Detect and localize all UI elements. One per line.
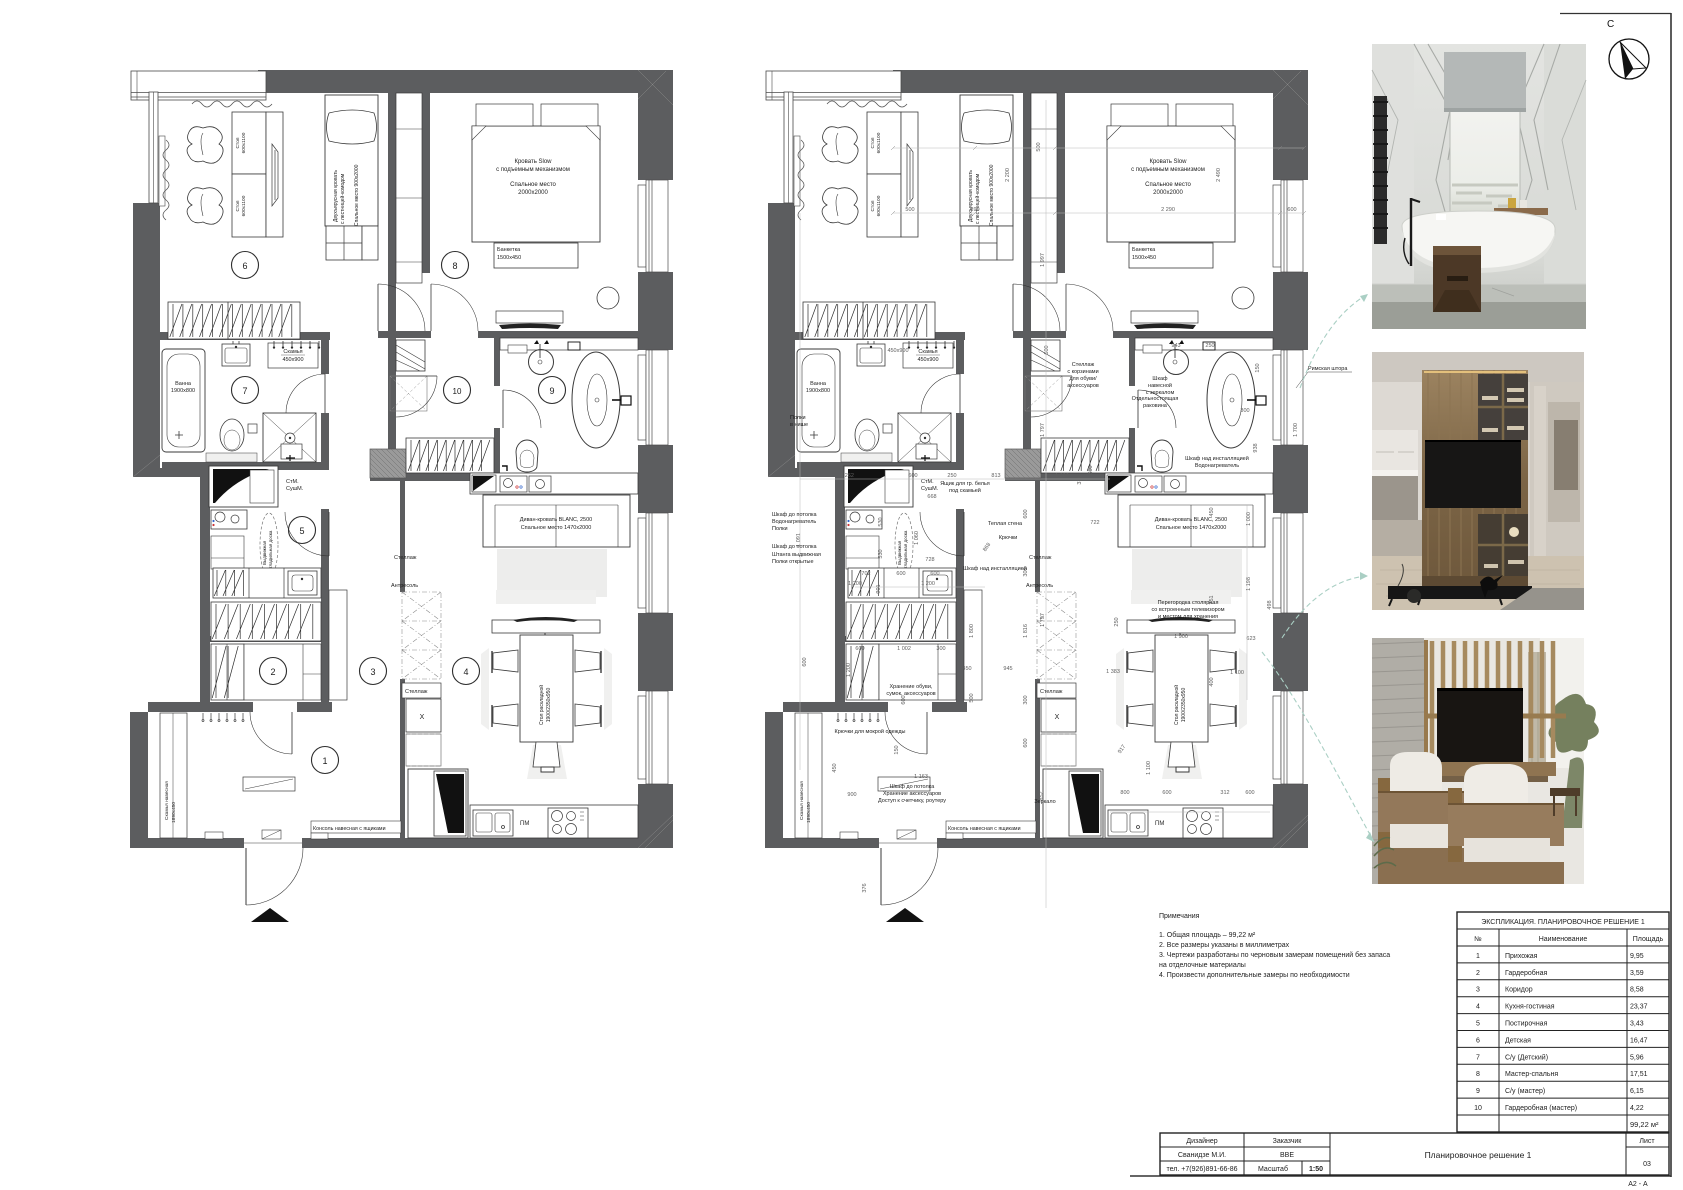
svg-text:3: 3	[370, 667, 375, 677]
svg-text:8,58: 8,58	[1630, 987, 1644, 994]
svg-text:2. Все размеры указаны в милли: 2. Все размеры указаны в миллиметрах	[1159, 942, 1290, 949]
svg-text:250: 250	[947, 473, 956, 479]
svg-text:17,51: 17,51	[1630, 1071, 1648, 1078]
svg-text:сумок, аксессуаров: сумок, аксессуаров	[886, 691, 935, 697]
svg-text:498: 498	[1267, 600, 1273, 609]
svg-text:гладильная доска: гладильная доска	[903, 530, 908, 568]
svg-text:Прихожая: Прихожая	[1505, 953, 1538, 960]
svg-text:8: 8	[1476, 1071, 1480, 1078]
svg-text:9: 9	[1476, 1088, 1480, 1095]
svg-text:600: 600	[1088, 465, 1094, 474]
svg-text:1 797: 1 797	[1040, 613, 1046, 627]
svg-text:Хранение аксессуаров: Хранение аксессуаров	[883, 791, 941, 797]
svg-text:530: 530	[878, 517, 884, 526]
svg-text:навесной: навесной	[1148, 382, 1172, 389]
svg-text:376: 376	[862, 883, 868, 892]
svg-text:Постирочная: Постирочная	[1505, 1021, 1548, 1028]
svg-text:Заказчик: Заказчик	[1273, 1138, 1303, 1145]
svg-text:Выдвижная: Выдвижная	[262, 540, 267, 565]
svg-text:250: 250	[1205, 343, 1214, 349]
svg-text:Шкаф над инсталляцией: Шкаф над инсталляцией	[1185, 455, 1249, 462]
svg-text:Скамья: Скамья	[918, 349, 937, 355]
svg-text:Кровать Slow: Кровать Slow	[1149, 159, 1187, 165]
svg-text:2 490: 2 490	[1216, 168, 1222, 182]
svg-text:Шкаф до потолка: Шкаф до потолка	[772, 512, 818, 518]
svg-text:Стеллаж: Стеллаж	[1072, 362, 1095, 368]
svg-text:300: 300	[1023, 695, 1029, 704]
svg-text:Ванна: Ванна	[175, 381, 192, 387]
svg-text:Диван-кровать BLANC, 2500: Диван-кровать BLANC, 2500	[520, 517, 592, 523]
svg-text:Хранение обуви,: Хранение обуви,	[890, 684, 933, 690]
svg-text:Водонагреватель: Водонагреватель	[772, 519, 816, 525]
svg-text:Спальное место: Спальное место	[510, 182, 556, 188]
svg-text:1900/2350х950: 1900/2350х950	[1181, 688, 1187, 723]
svg-text:Масштаб: Масштаб	[1258, 1165, 1288, 1173]
svg-text:5: 5	[299, 526, 304, 536]
svg-text:Скамья навесная: Скамья навесная	[799, 781, 805, 820]
svg-text:Спальное место 1470х2000: Спальное место 1470х2000	[1156, 525, 1227, 531]
svg-text:623: 623	[1246, 636, 1255, 642]
svg-text:99,22 м²: 99,22 м²	[1630, 1120, 1659, 1129]
svg-text:1 200: 1 200	[848, 581, 862, 587]
svg-text:Полки: Полки	[772, 526, 788, 532]
svg-text:5: 5	[1476, 1021, 1480, 1028]
svg-text:со встроенным телевизором: со встроенным телевизором	[1151, 607, 1224, 613]
svg-text:Теплая стена: Теплая стена	[988, 521, 1023, 527]
svg-text:1 800: 1 800	[969, 624, 975, 638]
svg-text:600: 600	[1023, 738, 1029, 747]
svg-text:Стол раскладной: Стол раскладной	[1173, 685, 1180, 725]
svg-text:702: 702	[861, 571, 870, 577]
svg-text:Х: Х	[1055, 714, 1060, 721]
svg-text:Спальное место: Спальное место	[1145, 182, 1191, 188]
svg-text:2: 2	[1476, 970, 1480, 977]
svg-text:1 200: 1 200	[921, 581, 935, 587]
svg-text:Шкаф до потолка: Шкаф до потолка	[772, 544, 818, 550]
svg-text:1900х800: 1900х800	[806, 388, 830, 394]
svg-text:2 290: 2 290	[1161, 207, 1175, 213]
svg-text:312: 312	[1220, 790, 1229, 796]
svg-text:150: 150	[1255, 363, 1261, 372]
svg-text:1500х450: 1500х450	[1132, 255, 1156, 261]
svg-text:1890х450: 1890х450	[806, 802, 812, 823]
svg-text:600: 600	[802, 657, 808, 666]
svg-text:№: №	[1474, 936, 1482, 943]
svg-text:600х1100: 600х1100	[241, 195, 247, 216]
svg-text:1 060: 1 060	[914, 531, 920, 545]
svg-text:3,43: 3,43	[1630, 1021, 1644, 1028]
svg-text:ВВЕ: ВВЕ	[1280, 1152, 1294, 1159]
svg-text:3: 3	[1476, 987, 1480, 994]
svg-text:Скамья: Скамья	[283, 349, 302, 355]
svg-text:250: 250	[1114, 617, 1120, 626]
svg-text:Консоль навесная с ящиками: Консоль навесная с ящиками	[948, 826, 1021, 832]
svg-text:2 200: 2 200	[1005, 168, 1011, 182]
svg-text:Полки: Полки	[790, 415, 806, 421]
svg-text:Спальное место 1470х2000: Спальное место 1470х2000	[521, 525, 592, 531]
svg-text:1 797: 1 797	[1040, 423, 1046, 437]
svg-text:тел. +7(926)891-66-86: тел. +7(926)891-66-86	[1167, 1166, 1238, 1173]
svg-text:600: 600	[855, 646, 864, 652]
svg-text:Диван-кровать BLANC, 2500: Диван-кровать BLANC, 2500	[1155, 517, 1227, 523]
svg-text:4. Произвести дополнительные з: 4. Произвести дополнительные замеры по н…	[1159, 971, 1350, 979]
svg-text:450х900: 450х900	[917, 357, 938, 363]
svg-text:4: 4	[463, 667, 468, 677]
svg-text:Перегородка столярная: Перегородка столярная	[1158, 600, 1219, 606]
svg-text:6: 6	[242, 261, 247, 271]
svg-text:1890х450: 1890х450	[171, 802, 177, 823]
svg-text:Водонагреватель: Водонагреватель	[1195, 463, 1239, 469]
svg-text:600: 600	[1287, 207, 1296, 213]
svg-text:и местом для хранения: и местом для хранения	[1158, 614, 1218, 620]
svg-text:16,47: 16,47	[1630, 1037, 1648, 1044]
svg-text:Крючки: Крючки	[999, 535, 1018, 541]
svg-text:4: 4	[1476, 1004, 1480, 1011]
svg-text:1500х450: 1500х450	[497, 255, 521, 261]
svg-text:900: 900	[847, 792, 856, 798]
svg-text:Кухня-гостиная: Кухня-гостиная	[1505, 1004, 1555, 1011]
svg-text:Стол: Стол	[870, 137, 876, 148]
svg-text:С/у (Детский): С/у (Детский)	[1505, 1053, 1548, 1061]
svg-text:на отделочные материалы: на отделочные материалы	[1159, 962, 1246, 969]
svg-text:6,15: 6,15	[1630, 1088, 1644, 1095]
svg-text:с подъемным механизмом: с подъемным механизмом	[496, 167, 570, 173]
svg-text:Спальное место 900х2000: Спальное место 900х2000	[354, 164, 360, 226]
svg-text:СтМ.: СтМ.	[921, 479, 934, 485]
svg-text:Площадь: Площадь	[1633, 936, 1664, 943]
svg-text:Консоль навесная с ящиками: Консоль навесная с ящиками	[313, 826, 386, 832]
svg-text:С/у (мастер): С/у (мастер)	[1505, 1088, 1545, 1095]
svg-text:1900х800: 1900х800	[171, 388, 195, 394]
svg-text:600: 600	[896, 571, 905, 577]
svg-text:1 200: 1 200	[846, 663, 852, 677]
svg-text:800: 800	[1120, 790, 1129, 796]
svg-text:7: 7	[1476, 1054, 1480, 1061]
svg-text:для обуви/: для обуви/	[1069, 376, 1097, 382]
svg-text:А2 - А: А2 - А	[1628, 1181, 1648, 1188]
svg-text:Стол: Стол	[870, 200, 876, 211]
svg-text:1 100: 1 100	[1146, 761, 1152, 775]
svg-text:Примечания: Примечания	[1159, 913, 1200, 920]
svg-text:600х1100: 600х1100	[876, 195, 882, 216]
svg-text:с лестницей-комодом: с лестницей-комодом	[339, 173, 346, 224]
svg-text:Банкетка: Банкетка	[1132, 247, 1156, 253]
svg-text:ПМ: ПМ	[520, 821, 529, 827]
svg-text:ЭКСПЛИКАЦИЯ. ПЛАНИРОВОЧНОЕ РЕШ: ЭКСПЛИКАЦИЯ. ПЛАНИРОВОЧНОЕ РЕШЕНИЕ 1	[1481, 919, 1645, 926]
svg-text:450: 450	[1209, 507, 1215, 516]
svg-text:Стол раскладной: Стол раскладной	[538, 685, 545, 725]
svg-text:2000х2000: 2000х2000	[518, 190, 548, 196]
svg-text:1 816: 1 816	[1023, 624, 1029, 638]
svg-text:500: 500	[905, 207, 914, 213]
svg-text:Доступ к счетчику, роутеру: Доступ к счетчику, роутеру	[878, 798, 946, 804]
svg-text:400: 400	[1209, 677, 1215, 686]
svg-text:1: 1	[1476, 953, 1480, 960]
svg-text:Дизайнер: Дизайнер	[1186, 1137, 1217, 1145]
svg-text:530: 530	[878, 549, 884, 558]
svg-text:Антресоль: Антресоль	[1026, 583, 1053, 589]
svg-text:5,96: 5,96	[1630, 1054, 1644, 1061]
svg-text:3. Чертежи разработаны по черн: 3. Чертежи разработаны по черновым замер…	[1159, 951, 1390, 959]
svg-text:600: 600	[1044, 345, 1050, 354]
svg-text:450: 450	[962, 666, 971, 672]
svg-text:03: 03	[1643, 1161, 1651, 1168]
svg-text:150: 150	[894, 745, 900, 754]
svg-text:901: 901	[876, 584, 882, 593]
svg-text:4,22: 4,22	[1630, 1105, 1644, 1112]
svg-text:2000х2000: 2000х2000	[1153, 190, 1183, 196]
svg-text:728: 728	[925, 557, 934, 563]
svg-text:945: 945	[1003, 666, 1012, 672]
svg-text:1900/2350х950: 1900/2350х950	[546, 688, 552, 723]
svg-text:под скамьей: под скамьей	[949, 487, 981, 494]
svg-text:Шкаф до потолка: Шкаф до потолка	[890, 784, 936, 790]
svg-text:Отдельностоящая: Отдельностоящая	[1132, 396, 1179, 402]
svg-text:ПМ: ПМ	[1155, 821, 1164, 827]
svg-text:Скамья навесная: Скамья навесная	[164, 781, 170, 820]
svg-text:Двухъярусная кровать: Двухъярусная кровать	[333, 170, 339, 222]
svg-text:раковина: раковина	[1143, 403, 1168, 409]
svg-text:722: 722	[1090, 520, 1099, 526]
svg-text:Зеркало: Зеркало	[1034, 799, 1055, 805]
svg-text:500: 500	[969, 693, 975, 702]
svg-text:Планировочное решение 1: Планировочное решение 1	[1425, 1150, 1532, 1160]
svg-text:600: 600	[930, 571, 939, 577]
svg-text:Кровать Slow: Кровать Slow	[514, 159, 552, 165]
svg-text:Стеллаж: Стеллаж	[1040, 689, 1063, 695]
svg-text:10: 10	[1474, 1105, 1482, 1112]
svg-text:аксессуаров: аксессуаров	[1067, 383, 1099, 389]
svg-text:1 100: 1 100	[1230, 670, 1244, 676]
svg-text:376: 376	[1077, 475, 1083, 484]
svg-text:600: 600	[908, 473, 917, 479]
svg-text:Гардеробная: Гардеробная	[1505, 969, 1548, 977]
svg-text:890: 890	[970, 207, 979, 213]
svg-text:1 383: 1 383	[1106, 669, 1120, 675]
svg-text:Х: Х	[420, 714, 425, 721]
svg-text:СушМ.: СушМ.	[286, 486, 304, 492]
svg-text:Стол: Стол	[235, 200, 241, 211]
svg-text:938: 938	[1253, 443, 1259, 452]
svg-text:9: 9	[549, 386, 554, 396]
svg-text:1 100: 1 100	[1055, 473, 1069, 479]
svg-text:6: 6	[1476, 1037, 1480, 1044]
svg-text:Крючки для мокрой одежды: Крючки для мокрой одежды	[834, 728, 905, 735]
svg-text:1 163: 1 163	[914, 774, 928, 780]
svg-text:943: 943	[1171, 343, 1180, 349]
svg-text:Штанга выдвижная: Штанга выдвижная	[772, 552, 821, 558]
svg-text:7: 7	[242, 386, 247, 396]
svg-text:гладильная доска: гладильная доска	[268, 530, 273, 568]
svg-text:Лист: Лист	[1639, 1138, 1655, 1145]
svg-text:1 700: 1 700	[1293, 423, 1299, 437]
svg-text:Стеллаж: Стеллаж	[1029, 555, 1052, 561]
svg-text:8: 8	[452, 261, 457, 271]
svg-text:1 997: 1 997	[1040, 253, 1046, 267]
svg-text:Стол: Стол	[235, 137, 241, 148]
svg-text:800: 800	[1240, 408, 1249, 414]
svg-text:Банкетка: Банкетка	[497, 247, 521, 253]
svg-text:600х1100: 600х1100	[876, 132, 882, 153]
svg-text:23,37: 23,37	[1630, 1004, 1648, 1011]
svg-text:1:50: 1:50	[1309, 1166, 1323, 1173]
svg-text:450х900: 450х900	[887, 348, 908, 354]
svg-text:Стеллаж: Стеллаж	[394, 555, 417, 561]
svg-text:300: 300	[936, 646, 945, 652]
svg-text:Шкаф: Шкаф	[1152, 376, 1168, 382]
svg-text:10: 10	[453, 387, 462, 396]
svg-text:Выдвижная: Выдвижная	[897, 540, 902, 565]
svg-text:СушМ.: СушМ.	[921, 486, 939, 492]
svg-text:1 900: 1 900	[1174, 634, 1188, 640]
svg-text:Детская: Детская	[1505, 1037, 1531, 1044]
svg-text:Гардеробная (мастер): Гардеробная (мастер)	[1505, 1104, 1577, 1112]
svg-text:500: 500	[1036, 142, 1042, 151]
svg-text:Стеллаж: Стеллаж	[405, 689, 428, 695]
svg-text:в нише: в нише	[790, 422, 808, 428]
svg-text:600: 600	[1023, 509, 1029, 518]
svg-text:600: 600	[1245, 790, 1254, 796]
svg-text:450х900: 450х900	[282, 357, 303, 363]
svg-text:2: 2	[270, 667, 275, 677]
svg-text:1. Общая площадь – 99,22 м²: 1. Общая площадь – 99,22 м²	[1159, 931, 1256, 939]
svg-text:Шкаф над инсталляцией: Шкаф над инсталляцией	[963, 565, 1027, 572]
svg-text:с корзинами: с корзинами	[1067, 369, 1098, 375]
svg-text:Ванна: Ванна	[810, 381, 827, 387]
svg-text:1 002: 1 002	[897, 646, 911, 652]
svg-text:Антресоль: Антресоль	[391, 583, 418, 589]
svg-text:Двухъярусная кровать: Двухъярусная кровать	[968, 170, 974, 222]
svg-text:9,95: 9,95	[1630, 953, 1644, 960]
svg-text:Полки открытые: Полки открытые	[772, 559, 814, 565]
svg-text:Наименование: Наименование	[1539, 936, 1588, 943]
svg-text:Спальное место 900х2000: Спальное место 900х2000	[989, 164, 995, 226]
svg-text:с лестницей-комодом: с лестницей-комодом	[974, 173, 981, 224]
svg-text:668: 668	[927, 494, 936, 500]
svg-text:1: 1	[322, 756, 327, 766]
svg-text:450: 450	[832, 763, 838, 772]
svg-text:Ящик для гр. белья: Ящик для гр. белья	[940, 481, 990, 487]
svg-text:Мастер-спальня: Мастер-спальня	[1505, 1071, 1558, 1078]
svg-text:3,59: 3,59	[1630, 970, 1644, 977]
svg-text:600: 600	[1162, 790, 1171, 796]
svg-text:600х1100: 600х1100	[241, 132, 247, 153]
svg-text:С: С	[1607, 19, 1614, 30]
svg-text:Римская штора: Римская штора	[1308, 366, 1348, 372]
svg-text:813: 813	[991, 473, 1000, 479]
svg-text:Коридор: Коридор	[1505, 987, 1533, 994]
svg-text:с подъемным механизмом: с подъемным механизмом	[1131, 167, 1205, 173]
svg-text:СтМ.: СтМ.	[286, 479, 299, 485]
svg-text:Сванидзе М.И.: Сванидзе М.И.	[1178, 1152, 1226, 1159]
svg-text:1 262: 1 262	[840, 473, 854, 479]
